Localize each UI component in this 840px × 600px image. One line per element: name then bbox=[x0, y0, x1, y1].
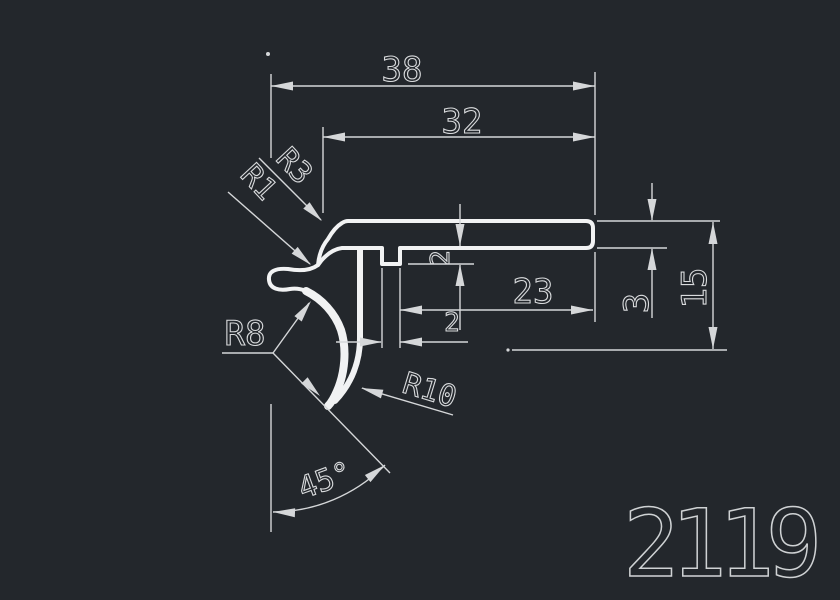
arrowhead bbox=[360, 338, 382, 347]
dimension-rib-width: 2 bbox=[336, 268, 468, 348]
extension-dot bbox=[506, 348, 509, 351]
arrowhead bbox=[573, 82, 595, 91]
arrowhead bbox=[365, 461, 388, 482]
dimension-text: 2 bbox=[444, 308, 460, 338]
cad-drawing-canvas: 38 32 23 2 2 bbox=[0, 0, 840, 600]
arrowhead bbox=[303, 202, 325, 224]
arrowhead bbox=[648, 199, 657, 221]
dimension-text: 15 bbox=[675, 268, 715, 309]
extension-dot bbox=[266, 52, 270, 56]
arrowhead bbox=[456, 264, 465, 286]
arrowhead bbox=[400, 338, 422, 347]
arrowhead bbox=[273, 508, 295, 518]
arrowhead bbox=[709, 327, 718, 349]
dimension-text: 38 bbox=[382, 50, 423, 90]
arrowhead bbox=[294, 298, 314, 321]
dimension-text: 32 bbox=[442, 102, 483, 142]
radius-callout-r8: R8 bbox=[222, 298, 390, 473]
arrowhead bbox=[271, 82, 293, 91]
dimension-overall-width: 38 bbox=[266, 50, 595, 215]
arrowhead bbox=[648, 248, 657, 270]
arrowhead bbox=[709, 222, 718, 244]
arrowhead bbox=[301, 377, 323, 399]
radius-text: R8 bbox=[225, 314, 266, 354]
arrowhead bbox=[323, 133, 345, 142]
part-number-text: 2119 bbox=[623, 490, 817, 599]
arrowhead bbox=[400, 306, 422, 315]
arrowhead bbox=[571, 306, 593, 315]
dimension-text: 2 bbox=[426, 250, 456, 266]
profile-curl-tab bbox=[269, 265, 318, 291]
dimension-upper-width: 32 bbox=[323, 102, 595, 213]
leader-line-45deg bbox=[273, 353, 390, 473]
arrowhead bbox=[360, 384, 384, 399]
radius-callout-r10: R10 bbox=[360, 366, 461, 415]
arrowhead bbox=[292, 247, 314, 268]
dimension-text: 23 bbox=[513, 272, 554, 312]
radius-text: R10 bbox=[399, 366, 461, 415]
dimension-text: 3 bbox=[617, 293, 657, 313]
cad-drawing: 38 32 23 2 2 bbox=[0, 0, 840, 600]
angle-dimension-45: 45° bbox=[271, 404, 388, 532]
arrowhead bbox=[456, 224, 465, 246]
arrowhead bbox=[573, 133, 595, 142]
angle-text: 45° bbox=[294, 455, 357, 506]
